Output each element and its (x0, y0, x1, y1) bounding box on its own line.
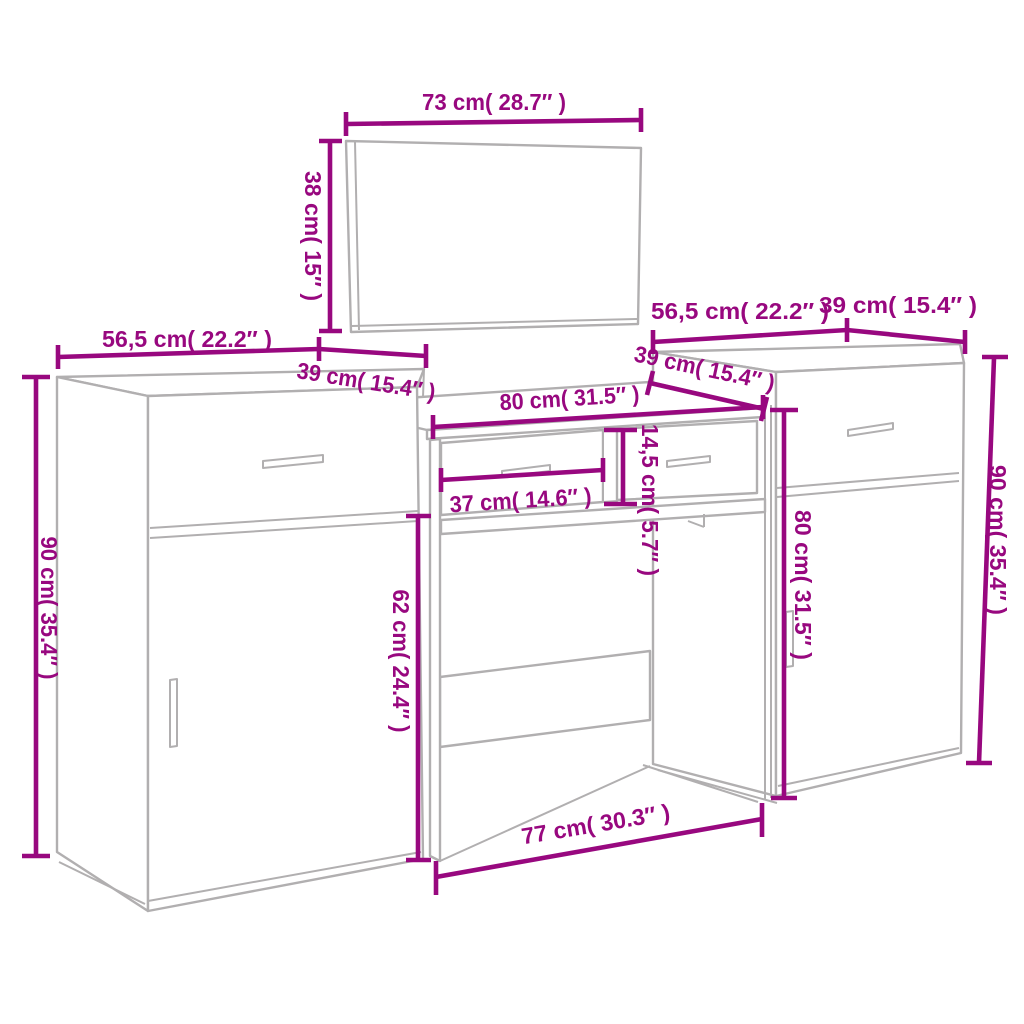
dim-mirror-height: 38 cm( 15″ ) (300, 141, 342, 331)
desk-modesty-panel (440, 651, 650, 747)
diagram-canvas: 73 cm( 28.7″ ) 38 cm( 15″ ) 56,5 cm( 22.… (0, 0, 1024, 1024)
desk-leg-height-label: 62 cm( 24.4″ ) (388, 590, 414, 733)
left-cabinet-side-panel (57, 377, 148, 911)
desk-drawer-height-label: 14,5 cm( 5.7″ ) (637, 424, 663, 576)
left-cabinet-door-handle (170, 679, 177, 747)
mirror-width-label: 73 cm( 28.7″ ) (422, 89, 566, 115)
furniture-dimension-diagram: 73 cm( 28.7″ ) 38 cm( 15″ ) 56,5 cm( 22.… (0, 0, 1024, 1024)
right-cabinet-height-label: 90 cm( 35.4″ ) (985, 465, 1011, 615)
right-cabinet-side-height-label: 80 cm( 31.5″ ) (790, 510, 816, 660)
mirror (346, 141, 641, 332)
mirror-height-label: 38 cm( 15″ ) (300, 171, 326, 301)
right-cabinet-depth-label: 39 cm( 15.4″ ) (819, 292, 977, 318)
left-cabinet (57, 369, 424, 911)
desk-left-leg (430, 439, 440, 861)
dim-desk-base-width: 77 cm( 30.3″ ) (436, 799, 762, 895)
desk-base-width-label: 77 cm( 30.3″ ) (520, 799, 672, 849)
left-cabinet-width-label: 56,5 cm( 22.2″ ) (102, 326, 272, 352)
dim-mirror-width: 73 cm( 28.7″ ) (346, 89, 641, 136)
left-cabinet-height-label: 90 cm( 35.4″ ) (36, 537, 62, 680)
dim-right-cabinet-height: 90 cm( 35.4″ ) (966, 357, 1011, 763)
mirror-frame (346, 141, 641, 332)
right-cabinet-width-label: 56,5 cm( 22.2″ ) (651, 298, 829, 324)
